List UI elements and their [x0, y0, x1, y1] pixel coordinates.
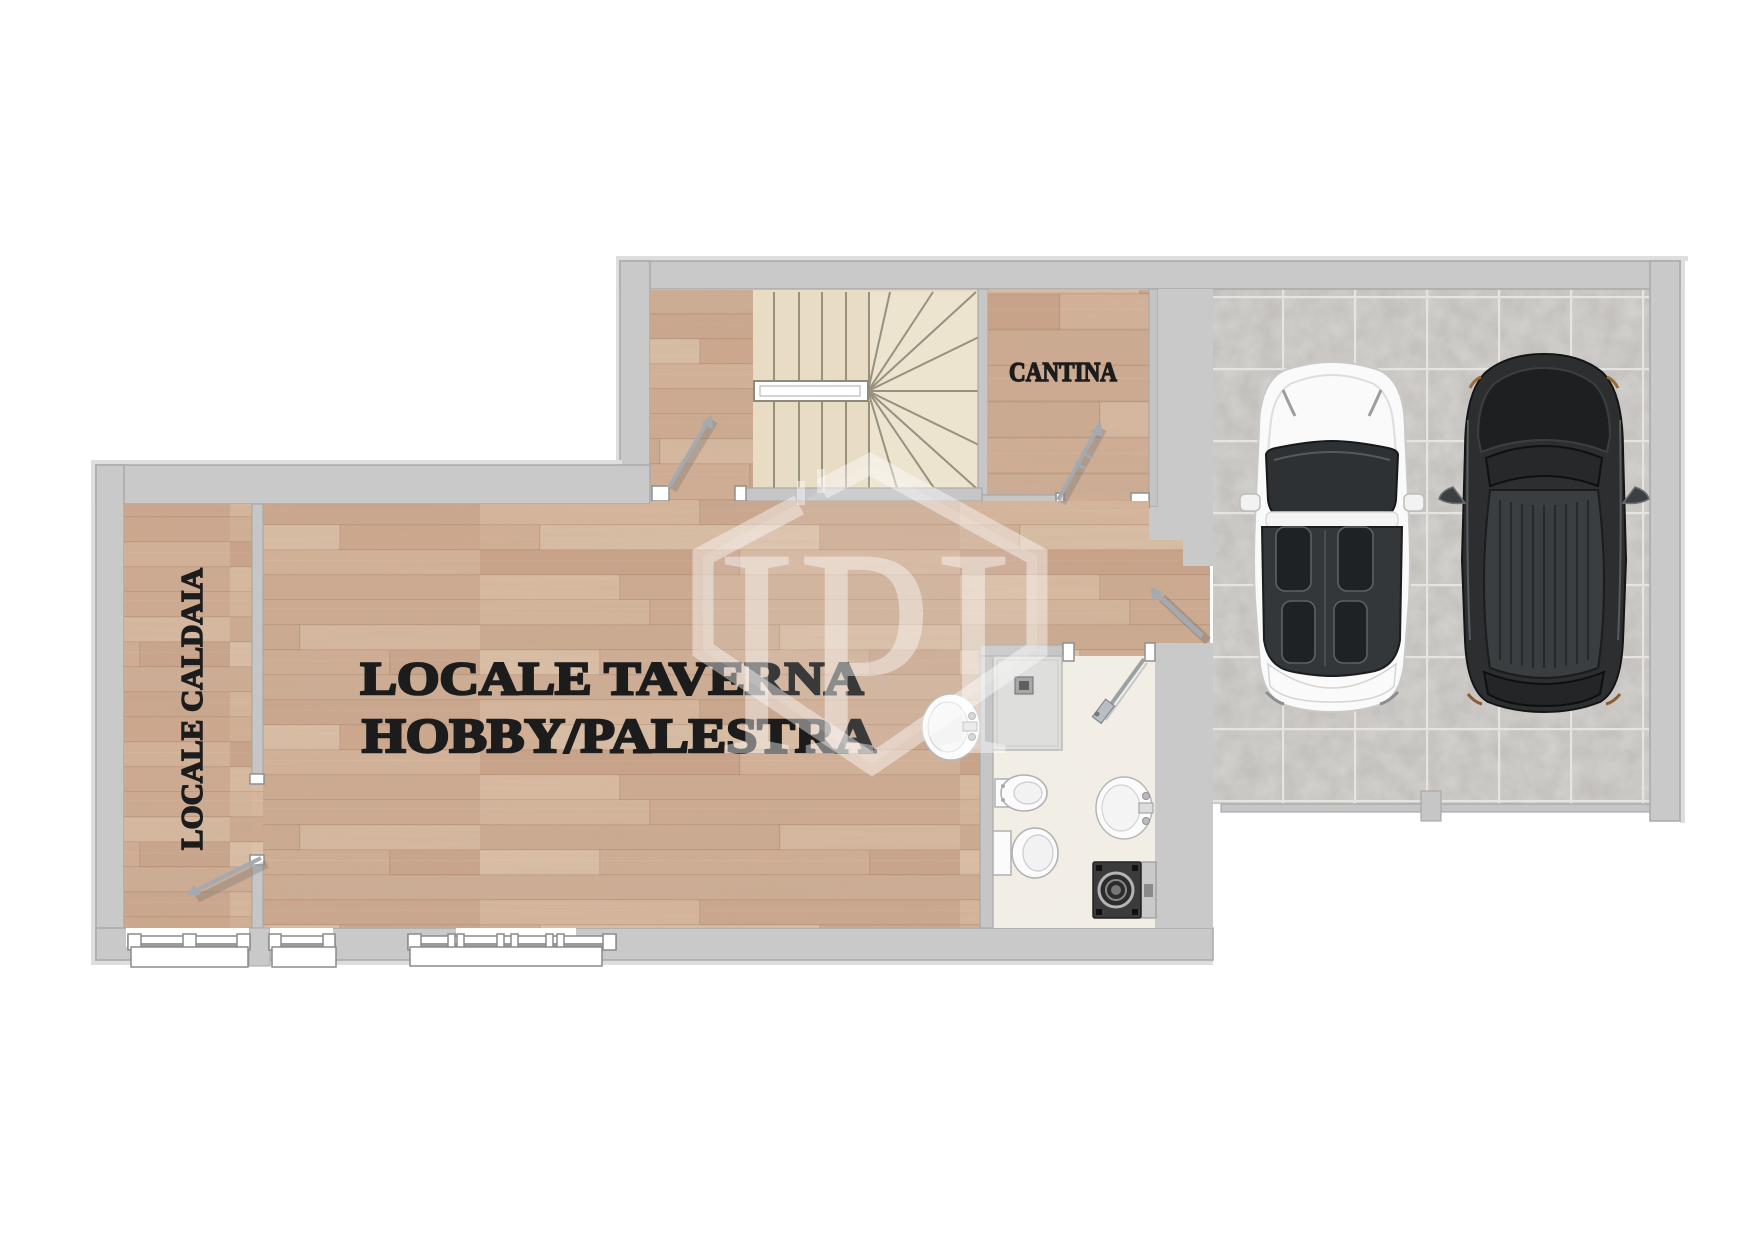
svg-text:LOCALE CALDAIA: LOCALE CALDAIA — [174, 567, 209, 850]
svg-text:IPI: IPI — [716, 486, 1014, 818]
svg-text:CANTINA: CANTINA — [1009, 357, 1117, 387]
